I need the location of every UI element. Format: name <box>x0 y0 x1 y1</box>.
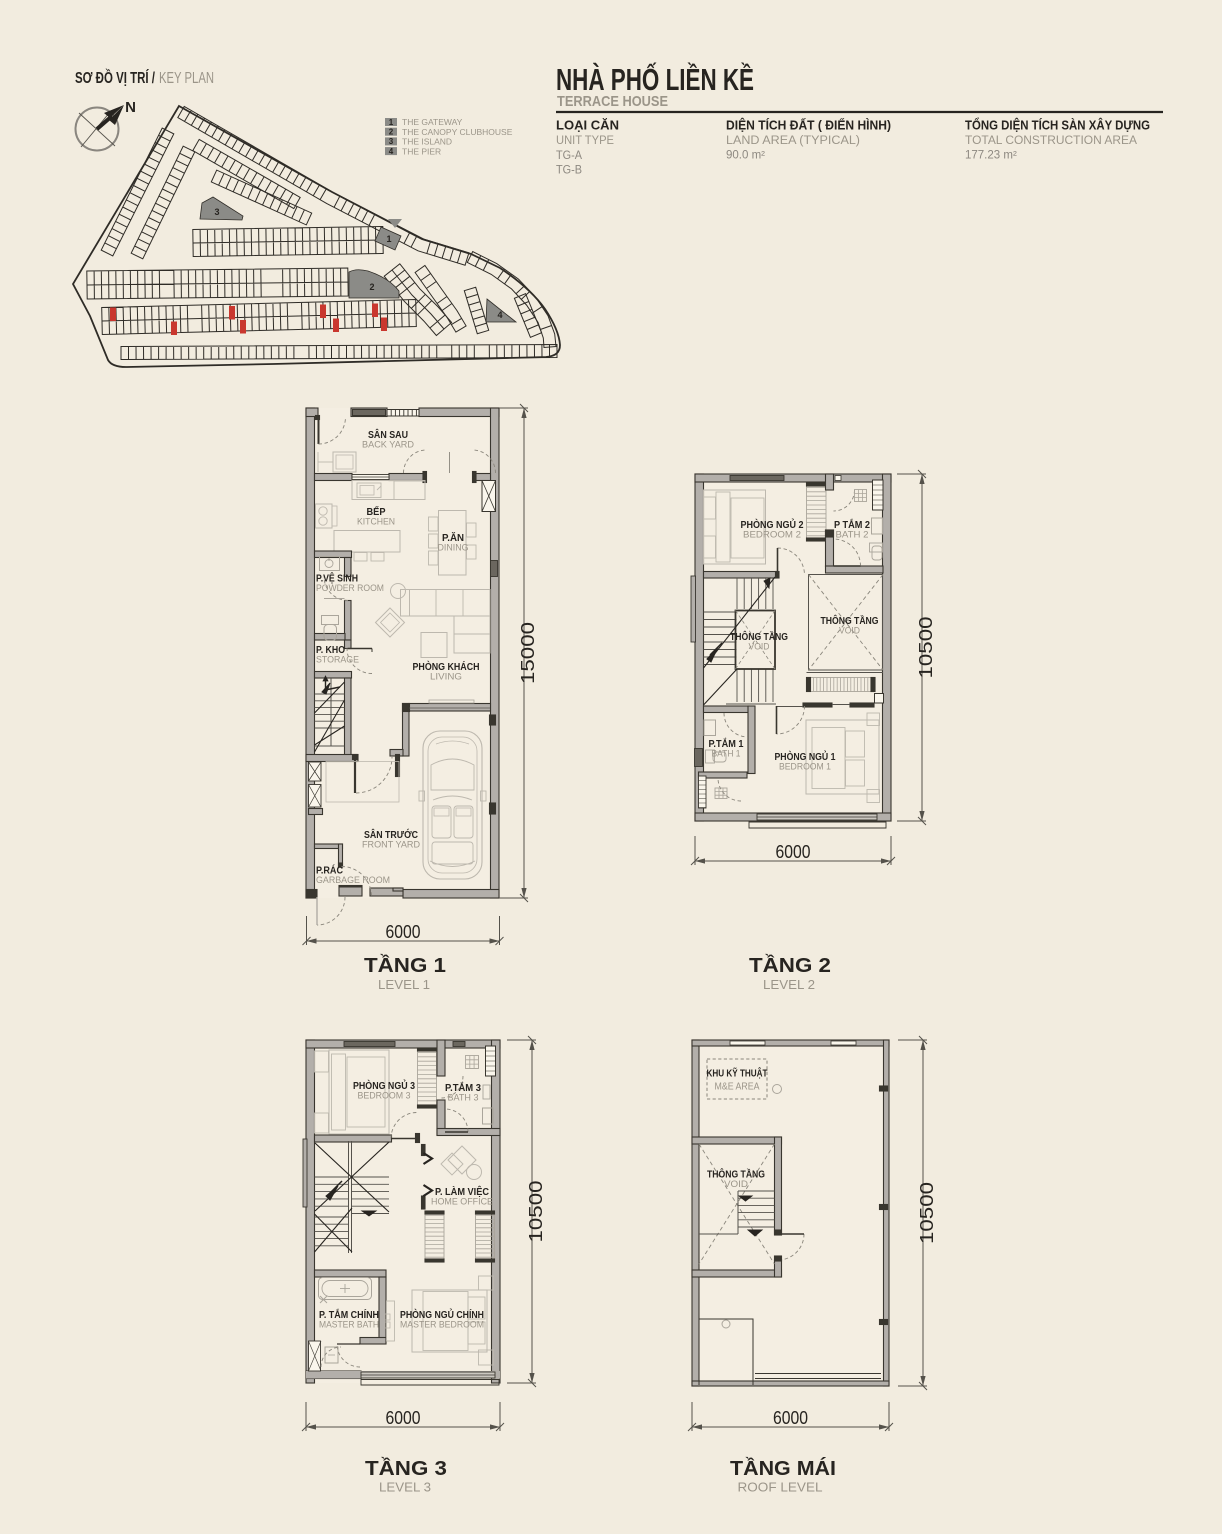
svg-text:TẦNG 2: TẦNG 2 <box>749 954 831 977</box>
svg-text:UNIT TYPE: UNIT TYPE <box>556 135 614 147</box>
svg-text:TERRACE HOUSE: TERRACE HOUSE <box>557 93 668 110</box>
svg-text:10500: 10500 <box>916 617 936 679</box>
svg-text:15000: 15000 <box>518 622 538 684</box>
svg-text:ROOF LEVEL: ROOF LEVEL <box>738 1480 823 1495</box>
svg-text:DIỆN TÍCH ĐẤT ( ĐIỂN HÌNH): DIỆN TÍCH ĐẤT ( ĐIỂN HÌNH) <box>726 118 891 133</box>
svg-text:STORAGE: STORAGE <box>316 655 359 666</box>
svg-text:VOID: VOID <box>839 626 860 637</box>
svg-text:SƠ ĐỒ VỊ TRÍ /: SƠ ĐỒ VỊ TRÍ / <box>75 68 155 87</box>
svg-text:MASTER BATH: MASTER BATH <box>319 1320 379 1331</box>
svg-text:TOTAL CONSTRUCTION AREA: TOTAL CONSTRUCTION AREA <box>965 135 1137 147</box>
svg-text:4: 4 <box>389 147 394 156</box>
svg-text:6000: 6000 <box>773 1408 808 1428</box>
svg-text:POWDER ROOM: POWDER ROOM <box>316 583 384 594</box>
svg-text:KITCHEN: KITCHEN <box>357 517 395 528</box>
svg-text:LEVEL 3: LEVEL 3 <box>379 1480 431 1495</box>
svg-text:BEDROOM 1: BEDROOM 1 <box>779 762 831 773</box>
svg-text:LAND AREA (TYPICAL): LAND AREA (TYPICAL) <box>726 135 860 147</box>
svg-text:10500: 10500 <box>917 1182 937 1244</box>
svg-text:3: 3 <box>389 137 394 146</box>
svg-text:1: 1 <box>386 234 391 244</box>
svg-text:THE GATEWAY: THE GATEWAY <box>402 117 463 127</box>
svg-text:3: 3 <box>214 207 219 217</box>
svg-text:BACK YARD: BACK YARD <box>362 440 414 451</box>
svg-text:LEVEL 2: LEVEL 2 <box>763 977 815 992</box>
svg-text:THE ISLAND: THE ISLAND <box>402 137 452 147</box>
svg-text:6000: 6000 <box>776 842 811 862</box>
svg-text:VOID: VOID <box>724 1179 748 1190</box>
svg-text:THE CANOPY CLUBHOUSE: THE CANOPY CLUBHOUSE <box>402 127 513 137</box>
svg-text:TẦNG MÁI: TẦNG MÁI <box>730 1457 836 1480</box>
svg-text:KHU KỸ THUẬT: KHU KỸ THUẬT <box>707 1067 768 1080</box>
svg-text:TẦNG 1: TẦNG 1 <box>364 954 446 977</box>
svg-text:6000: 6000 <box>386 922 421 942</box>
svg-text:LOẠI CĂN: LOẠI CĂN <box>556 118 619 133</box>
svg-text:LEVEL 1: LEVEL 1 <box>378 977 430 992</box>
svg-text:FRONT YARD: FRONT YARD <box>362 840 420 851</box>
svg-text:GARBAGE ROOM: GARBAGE ROOM <box>316 875 390 886</box>
svg-text:10500: 10500 <box>526 1181 546 1243</box>
svg-text:6000: 6000 <box>386 1408 421 1428</box>
svg-text:BATH 2: BATH 2 <box>836 530 869 541</box>
svg-text:BATH 3: BATH 3 <box>448 1093 479 1104</box>
svg-text:90.0 m²: 90.0 m² <box>726 150 765 162</box>
svg-text:DINING: DINING <box>438 543 469 554</box>
svg-text:THE PIER: THE PIER <box>402 146 441 156</box>
svg-text:1: 1 <box>389 118 394 127</box>
svg-text:TG-B: TG-B <box>556 165 582 177</box>
svg-text:TẦNG 3: TẦNG 3 <box>365 1457 447 1480</box>
svg-text:LIVING: LIVING <box>430 672 462 683</box>
svg-text:177.23 m²: 177.23 m² <box>965 150 1017 162</box>
svg-text:HOME OFFICE: HOME OFFICE <box>431 1197 493 1208</box>
svg-text:MASTER BEDROOM: MASTER BEDROOM <box>400 1320 484 1331</box>
svg-text:NHÀ PHỐ LIỀN KỀ: NHÀ PHỐ LIỀN KỀ <box>556 61 754 97</box>
svg-text:VOID: VOID <box>749 642 770 653</box>
svg-text:2: 2 <box>389 128 394 137</box>
svg-text:KEY PLAN: KEY PLAN <box>159 70 214 87</box>
svg-text:BEDROOM 2: BEDROOM 2 <box>743 530 801 541</box>
svg-text:M&E AREA: M&E AREA <box>715 1081 760 1093</box>
svg-text:4: 4 <box>497 310 502 320</box>
svg-text:BATH 1: BATH 1 <box>712 749 741 760</box>
svg-text:TG-A: TG-A <box>556 150 582 162</box>
svg-text:TỔNG DIỆN TÍCH SÀN XÂY DỰNG: TỔNG DIỆN TÍCH SÀN XÂY DỰNG <box>965 118 1150 133</box>
svg-text:2: 2 <box>369 282 374 292</box>
svg-text:BEDROOM 3: BEDROOM 3 <box>358 1091 411 1102</box>
svg-text:N: N <box>125 99 136 116</box>
